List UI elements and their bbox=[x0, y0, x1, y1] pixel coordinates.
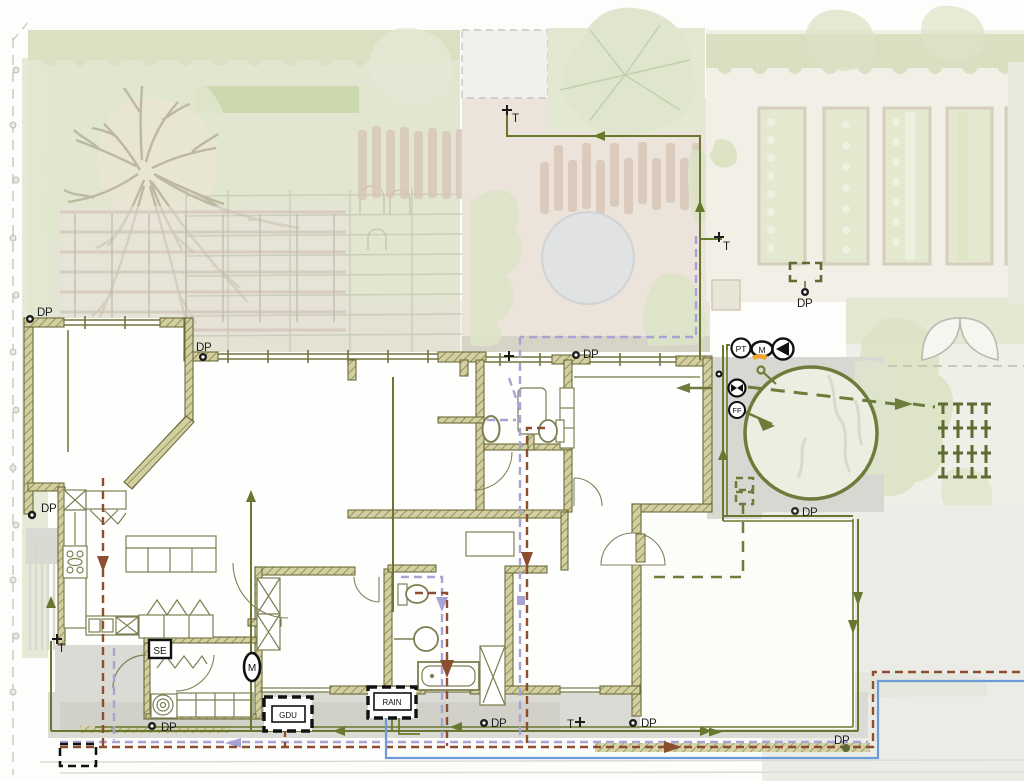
svg-text:DP: DP bbox=[641, 718, 657, 730]
svg-text:DP: DP bbox=[491, 718, 507, 730]
svg-text:DP: DP bbox=[161, 722, 177, 734]
svg-text:M: M bbox=[758, 345, 765, 355]
svg-text:DP: DP bbox=[802, 507, 818, 519]
svg-text:M: M bbox=[248, 663, 256, 674]
svg-text:T: T bbox=[723, 241, 730, 253]
svg-text:FF: FF bbox=[732, 406, 742, 415]
svg-text:SE: SE bbox=[153, 646, 167, 657]
svg-text:T: T bbox=[512, 113, 519, 125]
svg-text:PT: PT bbox=[736, 344, 747, 354]
svg-text:T: T bbox=[567, 719, 574, 731]
svg-text:T: T bbox=[58, 643, 65, 655]
svg-text:DP: DP bbox=[196, 342, 212, 354]
svg-text:DP: DP bbox=[37, 307, 53, 319]
svg-text:DP: DP bbox=[797, 298, 813, 310]
svg-text:DP: DP bbox=[834, 735, 850, 747]
svg-text:GDU: GDU bbox=[279, 711, 297, 720]
svg-text:DP: DP bbox=[583, 349, 599, 361]
svg-text:RAIN: RAIN bbox=[382, 698, 401, 707]
svg-text:DP: DP bbox=[41, 503, 57, 515]
